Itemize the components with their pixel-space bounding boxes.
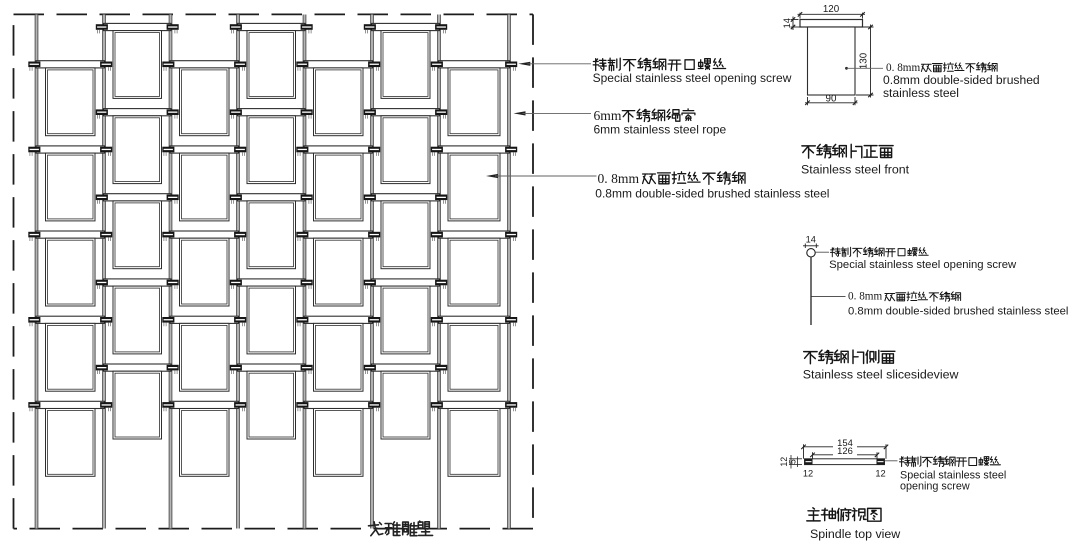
svg-text:0.8mm double-sided brushed sta: 0.8mm double-sided brushed stainless ste… — [595, 186, 829, 200]
svg-text:0. 8mm: 0. 8mm — [886, 62, 920, 74]
svg-text:90: 90 — [826, 93, 837, 104]
svg-text:Spindle top view: Spindle top view — [810, 527, 900, 541]
svg-text:130: 130 — [859, 52, 870, 69]
svg-text:14: 14 — [806, 234, 816, 244]
svg-text:6mm: 6mm — [594, 108, 622, 123]
svg-text:6mm stainless steel rope: 6mm stainless steel rope — [594, 122, 727, 136]
svg-text:14: 14 — [782, 18, 792, 28]
svg-text:opening screw: opening screw — [900, 481, 970, 493]
svg-text:12: 12 — [803, 469, 813, 479]
svg-text:12: 12 — [875, 469, 885, 479]
svg-text:0.8mm double-sided brushed sta: 0.8mm double-sided brushed stainless ste… — [848, 305, 1068, 317]
svg-text:0. 8mm: 0. 8mm — [848, 291, 882, 303]
svg-text:Stainless steel slicesideview: Stainless steel slicesideview — [803, 368, 959, 382]
svg-text:Special stainless steel openin: Special stainless steel opening screw — [829, 259, 1017, 271]
svg-text:Special stainless steel openin: Special stainless steel opening screw — [593, 71, 792, 85]
svg-text:120: 120 — [823, 4, 840, 15]
svg-text:stainless steel: stainless steel — [883, 86, 959, 100]
svg-text:Special stainless steel: Special stainless steel — [900, 469, 1006, 481]
svg-text:5: 5 — [787, 459, 797, 464]
svg-text:0. 8mm: 0. 8mm — [598, 171, 640, 186]
svg-text:Stainless steel front: Stainless steel front — [801, 163, 910, 177]
svg-text:126: 126 — [837, 445, 853, 456]
